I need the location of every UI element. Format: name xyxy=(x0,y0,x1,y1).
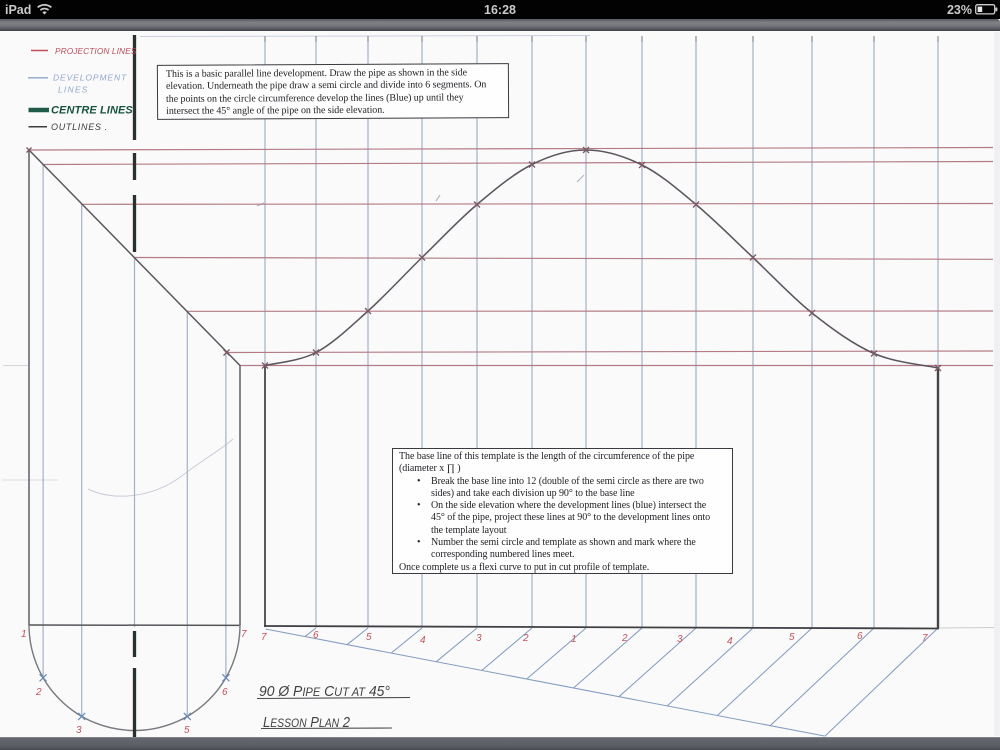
svg-text:7: 7 xyxy=(922,633,928,644)
svg-text:PROJECTION LINES: PROJECTION LINES xyxy=(55,46,137,56)
svg-text:4: 4 xyxy=(727,636,733,647)
svg-text:DEVELOPMENT: DEVELOPMENT xyxy=(53,73,127,83)
svg-text:23%: 23% xyxy=(947,3,972,17)
svg-text:iPad: iPad xyxy=(5,3,31,17)
svg-text:6: 6 xyxy=(857,631,863,642)
svg-text:CENTRE LINES: CENTRE LINES xyxy=(51,105,133,117)
svg-text:4: 4 xyxy=(420,635,426,646)
svg-text:OUTLINES .: OUTLINES . xyxy=(51,122,108,132)
svg-text:3: 3 xyxy=(76,725,82,736)
svg-text:7: 7 xyxy=(241,629,247,640)
svg-text:6: 6 xyxy=(222,687,228,698)
svg-text:2: 2 xyxy=(35,687,42,698)
svg-text:2: 2 xyxy=(621,633,628,644)
svg-text:16:28: 16:28 xyxy=(484,3,516,17)
svg-text:5: 5 xyxy=(789,632,795,643)
svg-text:5: 5 xyxy=(184,725,190,736)
svg-text:3: 3 xyxy=(476,633,482,644)
svg-text:6: 6 xyxy=(313,630,319,641)
svg-text:5: 5 xyxy=(366,632,372,643)
svg-text:1: 1 xyxy=(21,629,27,640)
svg-text:2: 2 xyxy=(522,633,529,644)
svg-text:7: 7 xyxy=(261,632,267,643)
svg-text:3: 3 xyxy=(677,634,683,645)
svg-text:1: 1 xyxy=(571,634,577,645)
svg-text:LINES: LINES xyxy=(58,85,89,95)
